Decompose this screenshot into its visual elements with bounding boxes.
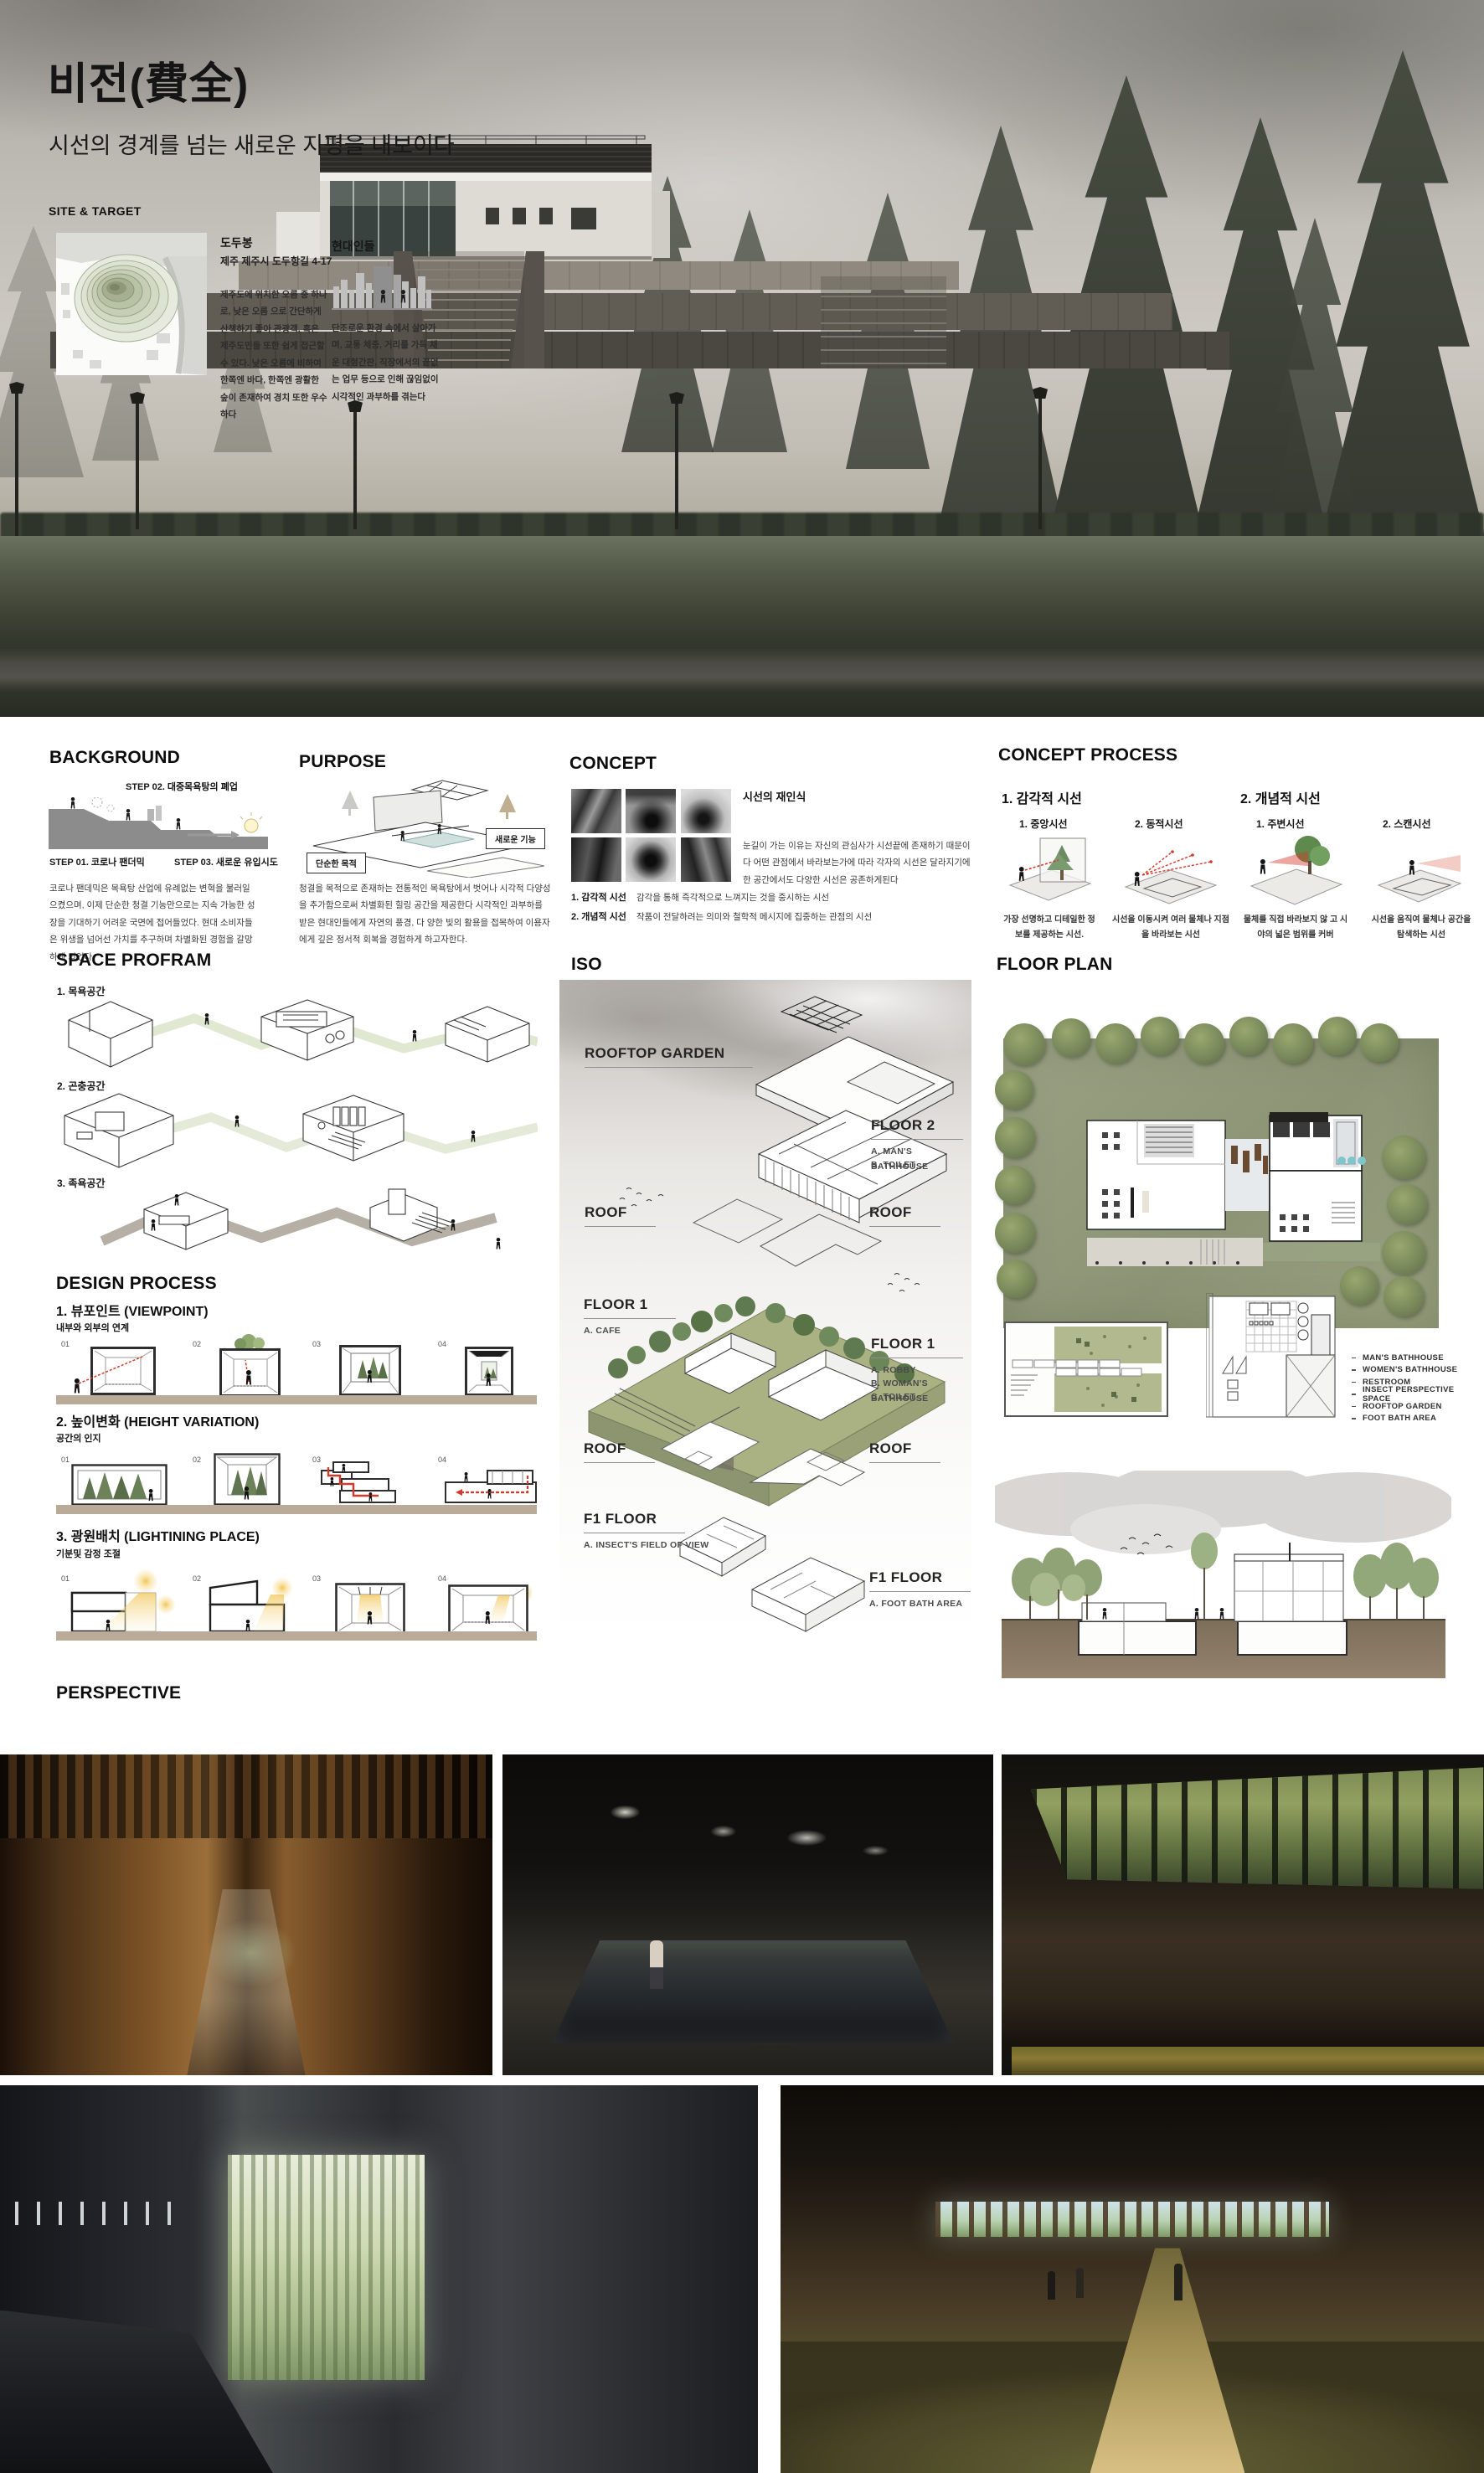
plan-tree-icon (995, 1117, 1035, 1157)
concept-subheading: 시선의 재인식 (743, 788, 806, 804)
sight-diagram-peripheral (1246, 829, 1347, 906)
visitor-figure (1174, 2264, 1183, 2300)
concept-process-group2: 2. 개념적 시선 (1240, 787, 1321, 807)
iso-roof-left1-label: ROOF (585, 1204, 656, 1227)
poster-subtitle: 시선의 경계를 넘는 새로운 지평을 내보이다 (49, 127, 455, 160)
visitor-figure (1048, 2271, 1055, 2300)
street-lamp-icon (15, 394, 18, 536)
stairs (821, 276, 946, 368)
ground-strip (56, 1395, 537, 1404)
concept-item1-text: 감각을 통해 즉각적으로 느껴지는 것을 중시하는 시선 (636, 889, 971, 906)
design-section2-title: 2. 높이변화 (HEIGHT VARIATION) (56, 1410, 259, 1430)
presentation-board: 비전(費全) 시선의 경계를 넘는 새로운 지평을 내보이다 SITE & TA… (0, 0, 1484, 2473)
perspective-heading: PERSPECTIVE (56, 1683, 181, 1703)
concept-eye-photo (571, 789, 621, 833)
frame-number: 01 (61, 1340, 70, 1348)
background-step3: STEP 03. 새로운 유입시도 (174, 855, 278, 868)
frame-number: 02 (193, 1340, 201, 1348)
light-diagram-01 (69, 1568, 182, 1635)
concept-item2-label: 2. 개념적 시선 (571, 909, 626, 923)
plan-tree-icon (1141, 1017, 1179, 1055)
frame-number: 04 (438, 1340, 446, 1348)
frame-number: 02 (193, 1574, 201, 1583)
concept-eye-photo (626, 789, 676, 833)
iso-heading: ISO (571, 955, 602, 975)
target-description: 단조로운 환경 속에서 살아가며, 교통 체증, 거리를 가득 채운 대형간판,… (332, 320, 446, 405)
street-lamp-icon (1038, 399, 1042, 529)
site-contour-map (56, 233, 207, 375)
iso-rooftop-garden-label: ROOFTOP GARDEN (585, 1045, 753, 1068)
concept-eye-photo (626, 837, 676, 882)
site-name: 도두봉 (220, 234, 253, 251)
iso-f1-left-label: F1 FLOOR (584, 1511, 685, 1533)
ground-strip (56, 1631, 537, 1641)
concept-process-caption2: 시선을 이동시켜 여러 물체나 지점을 바라보는 시선 (1112, 913, 1229, 943)
plan-tree-icon (1387, 1184, 1427, 1224)
plan-tree-icon (995, 1070, 1033, 1109)
concept-process-heading: CONCEPT PROCESS (998, 745, 1177, 765)
height-diagram-01 (71, 1464, 167, 1506)
plan-tree-icon (1340, 1266, 1378, 1305)
viewpoint-diagram-02 (214, 1333, 286, 1397)
concept-eye-photo (681, 789, 731, 833)
plan-tree-icon (1382, 1231, 1425, 1275)
frame-number: 03 (312, 1574, 321, 1583)
frame-number: 04 (438, 1455, 446, 1464)
concept-item1-label: 1. 감각적 시선 (571, 890, 626, 904)
hero-render: 비전(費全) 시선의 경계를 넘는 새로운 지평을 내보이다 SITE & TA… (0, 0, 1484, 717)
concept-process-caption1: 가장 선명하고 디테일한 정보를 제공하는 시선. (1000, 913, 1099, 943)
viewpoint-diagram-01 (72, 1347, 156, 1395)
perspective-render-forestview (1002, 1754, 1484, 2075)
forest-opening (1031, 1767, 1484, 1889)
iso-roof-right2-label: ROOF (869, 1440, 940, 1463)
iso-f1-right-item-a: A. FOOT BATH AREA (869, 1596, 962, 1611)
concept-eye-photo (681, 837, 731, 882)
plan-tree-icon (1384, 1276, 1424, 1316)
concept-process-item2-label: 2. 동적시선 (1135, 817, 1183, 831)
concept-eye-photo (571, 837, 621, 882)
site-address: 제주 제주시 도두항길 4-17 (220, 254, 332, 268)
iso-floor2-label: FLOOR 2 (871, 1117, 963, 1140)
concept-process-caption3: 물체를 직접 바라보지 않 고 시야의 넓은 범위를 커버 (1243, 913, 1348, 943)
floor2-plan (1206, 1293, 1338, 1420)
purpose-heading: PURPOSE (299, 752, 386, 772)
pool (552, 1940, 955, 2043)
bather-figure (650, 1940, 663, 1989)
space-program-heading: SPACE PROFRAM (56, 951, 211, 971)
purpose-description: 청결을 목적으로 존재하는 전통적인 목욕탕에서 벗어나 시각적 다양성을 추가… (299, 880, 552, 949)
floor-plan-heading: FLOOR PLAN (997, 955, 1113, 975)
iso-floor1-left-label: FLOOR 1 (584, 1296, 676, 1319)
viewpoint-diagram-03 (339, 1345, 401, 1396)
legend-label: ROOFTOP GARDEN (1363, 1402, 1442, 1411)
iso-floor1-right-label: FLOOR 1 (871, 1336, 963, 1358)
perspective-render-underground-garden (781, 2085, 1484, 2473)
space-program-row1 (52, 995, 538, 1072)
street-lamp-icon (353, 412, 357, 529)
iso-floor1-right-item-c: C. TOILET (871, 1389, 915, 1404)
plan-tree-icon (1003, 1023, 1045, 1065)
sight-diagram-scan (1373, 833, 1466, 905)
height-diagram-04 (444, 1467, 538, 1506)
purpose-label-left: 단순한 목적 (307, 853, 366, 873)
design-section2-subtitle: 공간의 인지 (56, 1431, 101, 1445)
iso-roof-right1-label: ROOF (869, 1204, 940, 1227)
iso-f1-right-label: F1 FLOOR (869, 1569, 971, 1592)
ground-strip (56, 1505, 537, 1514)
iso-floor1-left-item-a: A. CAFE (584, 1323, 621, 1338)
iso-roof-left2-label: ROOF (584, 1440, 655, 1463)
legend-item: ROOFTOP GARDEN (1352, 1400, 1484, 1413)
plan-tree-icon (1382, 1136, 1425, 1179)
plan-tree-icon (1360, 1023, 1399, 1062)
design-process-heading: DESIGN PROCESS (56, 1274, 217, 1294)
concept-item2-text: 작품이 전달하려는 의미와 철학적 메시지에 집중하는 관점의 시선 (636, 909, 988, 925)
design-section3-subtitle: 기분및 감정 조절 (56, 1547, 121, 1560)
plan-legend: MAN'S BATHHOUSE WOMEN'S BATHHOUSE RESTRO… (1352, 1352, 1484, 1425)
site-target-heading: SITE & TARGET (49, 204, 142, 218)
design-section3-title: 3. 광원배치 (LIGHTINING PLACE) (56, 1525, 260, 1545)
purpose-label-right: 새로운 기능 (486, 828, 545, 849)
background-heading: BACKGROUND (49, 748, 180, 768)
plan-tree-icon (997, 1260, 1035, 1298)
plan-tree-icon (1184, 1023, 1224, 1064)
poster-title: 비전(費全) (48, 49, 249, 111)
background-step2: STEP 02. 대중목욕탕의 폐업 (126, 780, 238, 793)
legend-label: MAN'S BATHHOUSE (1363, 1353, 1444, 1363)
background-step1: STEP 01. 코로나 팬더믹 (49, 855, 145, 868)
rooftop-garden-plan (1004, 1322, 1168, 1417)
frame-number: 01 (61, 1455, 70, 1464)
concept-process-caption4: 시선을 움직여 물체나 공간을 탐색하는 시선 (1368, 913, 1474, 943)
iso-exploded-axon: ROOFTOP GARDEN FLOOR 2 A. MAN'S BATHHOUS… (559, 980, 971, 1637)
tree-silhouette-icon (712, 209, 787, 452)
grass-strip (1012, 2047, 1484, 2075)
plan-tree-icon (1273, 1023, 1313, 1064)
legend-item: MAN'S BATHHOUSE (1352, 1352, 1484, 1364)
visitor-figure (1076, 2268, 1084, 2298)
height-diagram-02 (214, 1453, 281, 1506)
legend-label: WOMEN'S BATHHOUSE (1363, 1365, 1457, 1374)
site-description: 제주도에 위치한 오름 중 하나로, 낮은 오름 으로 간단하게 산책하기 좋아… (220, 286, 327, 424)
plan-tree-icon (995, 1166, 1033, 1204)
frame-number: 02 (193, 1455, 201, 1464)
iso-f1-left-item-a: A. INSECT'S FIELD OF VIEW (584, 1538, 709, 1553)
iso-floor2-item-b: B. TOILET (871, 1157, 915, 1172)
legend-item: WOMEN'S BATHHOUSE (1352, 1364, 1484, 1377)
section-drawing (995, 1471, 1451, 1680)
plan-tree-icon (1229, 1017, 1268, 1055)
sight-diagram-central (1003, 833, 1095, 905)
design-section1-subtitle: 내부와 외부의 연계 (56, 1321, 129, 1334)
light-diagram-02 (205, 1576, 297, 1635)
sight-diagram-dynamic (1121, 833, 1221, 905)
target-name: 현대인들 (332, 238, 375, 255)
light-diagram-04 (448, 1584, 532, 1635)
frame-number: 03 (312, 1340, 321, 1348)
legend-item: INSECT PERSPECTIVE SPACE (1352, 1388, 1484, 1401)
street-lamp-icon (675, 404, 678, 529)
concept-process-group1: 1. 감각적 시선 (1002, 787, 1082, 807)
sky-opening (935, 2202, 1329, 2237)
viewpoint-diagram-04 (465, 1347, 513, 1396)
plan-tree-icon (1052, 1018, 1090, 1057)
greenery-window (228, 2155, 425, 2380)
frame-number: 04 (438, 1574, 446, 1583)
concept-description: 눈길이 가는 이유는 자신의 관심사가 시선끝에 존재하기 때문이다 어떤 관점… (743, 837, 971, 889)
perspective-render-bathhall (502, 1754, 993, 2075)
plan-tree-icon (1318, 1017, 1357, 1055)
light-diagram-03 (335, 1583, 405, 1635)
legend-label: FOOT BATH AREA (1363, 1414, 1436, 1423)
perspective-render-bath-window (0, 2085, 758, 2473)
height-diagram-03 (317, 1459, 417, 1506)
legend-item: FOOT BATH AREA (1352, 1413, 1484, 1425)
water-spouts (15, 2202, 182, 2225)
perspective-render-corridor (0, 1754, 492, 2075)
concept-process-item4-label: 2. 스캔시선 (1383, 817, 1431, 831)
plan-tree-icon (1095, 1023, 1136, 1064)
space-program-row2 (52, 1089, 538, 1172)
plan-tree-icon (995, 1213, 1035, 1253)
street-lamp-icon (136, 404, 139, 529)
foreground-grass (0, 536, 1484, 717)
space-program-row3 (52, 1182, 538, 1260)
city-people-icon (332, 265, 432, 313)
concept-process-item1-label: 1. 중앙시선 (1019, 817, 1068, 831)
design-section1-title: 1. 뷰포인트 (VIEWPOINT) (56, 1300, 209, 1320)
concept-heading: CONCEPT (569, 754, 657, 774)
background-diagram (49, 797, 268, 849)
